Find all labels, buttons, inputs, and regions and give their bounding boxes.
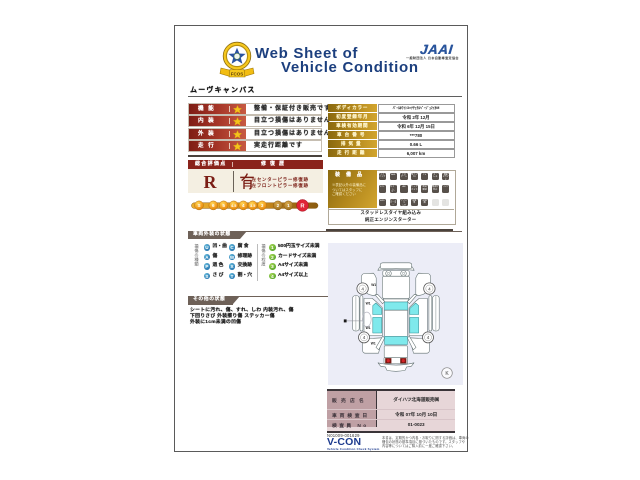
svg-text:1: 1 bbox=[287, 203, 290, 208]
svg-text:W1: W1 bbox=[366, 326, 371, 330]
svg-text:5: 5 bbox=[222, 203, 225, 208]
svg-text:2: 2 bbox=[277, 203, 280, 208]
svg-text:W1: W1 bbox=[366, 302, 371, 306]
svg-text:3.5: 3.5 bbox=[250, 203, 255, 207]
svg-text:4.5: 4.5 bbox=[231, 203, 236, 207]
svg-text:S: S bbox=[197, 203, 200, 208]
svg-text:W1: W1 bbox=[371, 342, 376, 346]
svg-text:6: 6 bbox=[212, 203, 215, 208]
svg-text:FCOS: FCOS bbox=[231, 71, 244, 76]
svg-text:4: 4 bbox=[361, 286, 364, 291]
svg-text:4: 4 bbox=[242, 203, 245, 208]
svg-text:W1: W1 bbox=[371, 283, 376, 287]
svg-text:3: 3 bbox=[261, 203, 264, 208]
svg-text:4: 4 bbox=[427, 335, 430, 340]
svg-text:4: 4 bbox=[363, 335, 366, 340]
svg-text:4: 4 bbox=[428, 286, 431, 291]
